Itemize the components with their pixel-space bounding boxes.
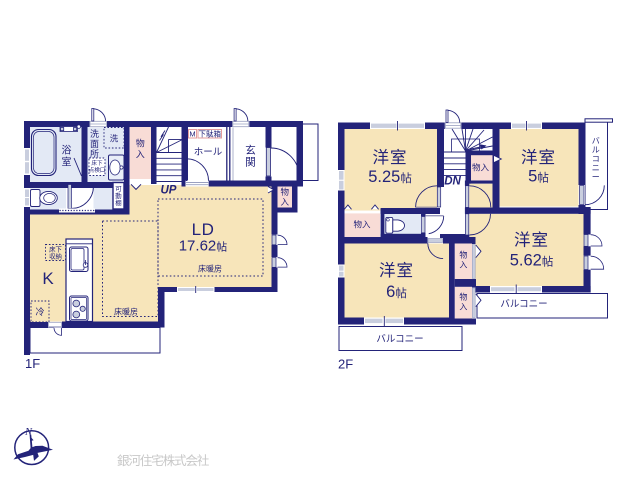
svg-text:浴: 浴 (62, 145, 72, 157)
svg-text:ニ: ニ (592, 164, 600, 173)
svg-text:収納: 収納 (49, 252, 62, 261)
svg-text:銀河住宅株式会社: 銀河住宅株式会社 (117, 453, 210, 468)
svg-text:所: 所 (90, 149, 99, 159)
svg-text:面: 面 (90, 139, 99, 149)
svg-text:バルコニー: バルコニー (500, 299, 547, 310)
svg-text:DN: DN (444, 176, 461, 188)
svg-text:床下: 床下 (91, 159, 103, 167)
svg-text:洋室: 洋室 (379, 261, 414, 280)
svg-text:洋室: 洋室 (373, 148, 408, 167)
svg-text:床暖房: 床暖房 (114, 307, 138, 317)
svg-text:洋室: 洋室 (514, 231, 549, 250)
svg-text:K: K (42, 269, 54, 288)
svg-text:コ: コ (592, 155, 600, 164)
svg-text:UP: UP (161, 185, 177, 197)
svg-text:LD: LD (192, 220, 215, 239)
svg-text:洗: 洗 (90, 128, 99, 139)
svg-text:ル: ル (592, 146, 600, 155)
svg-text:ー: ー (592, 173, 600, 182)
svg-text:玄: 玄 (245, 144, 256, 157)
svg-text:2F: 2F (338, 357, 353, 372)
svg-text:N: N (24, 427, 33, 438)
svg-text:物入: 物入 (472, 163, 490, 173)
svg-text:洋室: 洋室 (521, 148, 556, 167)
svg-text:入: 入 (459, 261, 467, 270)
svg-text:点検口: 点検口 (89, 166, 106, 174)
svg-text:バルコニー: バルコニー (376, 334, 423, 345)
svg-text:洗: 洗 (110, 133, 119, 143)
svg-text:バ: バ (592, 137, 600, 146)
svg-text:物: 物 (136, 138, 145, 149)
svg-text:M: M (189, 129, 195, 138)
svg-text:入: 入 (136, 150, 145, 160)
svg-text:冷: 冷 (35, 306, 44, 317)
svg-text:物入: 物入 (353, 220, 371, 230)
svg-text:床下: 床下 (49, 245, 62, 254)
svg-text:1F: 1F (25, 356, 40, 371)
svg-text:関: 関 (245, 157, 256, 169)
svg-text:棚: 棚 (115, 198, 121, 207)
svg-text:室: 室 (62, 156, 72, 169)
svg-text:床暖房: 床暖房 (198, 264, 222, 274)
svg-text:物: 物 (459, 292, 467, 302)
svg-text:ホール: ホール (194, 147, 223, 158)
svg-text:入: 入 (281, 197, 290, 207)
svg-text:下駄箱: 下駄箱 (199, 129, 222, 139)
svg-text:可: 可 (115, 185, 122, 193)
svg-text:物: 物 (459, 250, 467, 260)
svg-text:入: 入 (459, 303, 467, 312)
svg-text:物: 物 (281, 187, 290, 197)
svg-text:動: 動 (115, 191, 121, 200)
